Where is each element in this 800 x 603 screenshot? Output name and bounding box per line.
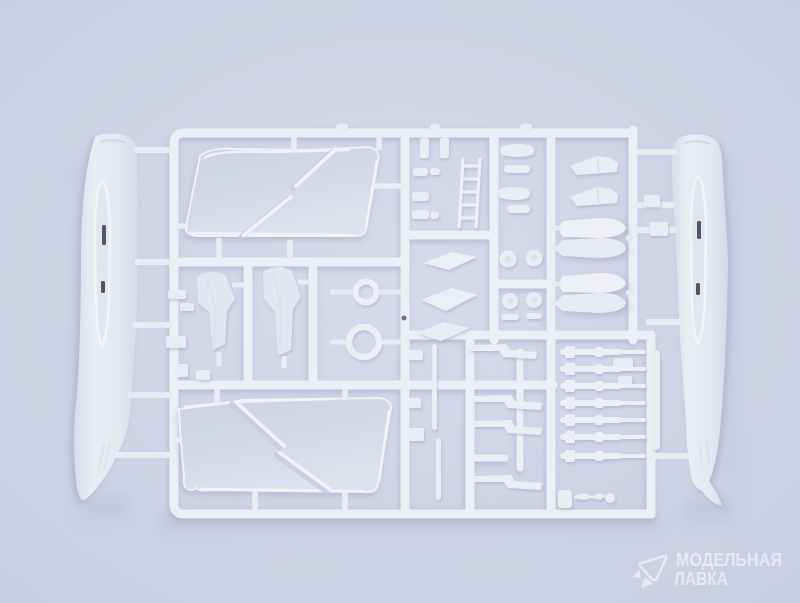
svg-text:МОДЕЛЬНАЯ: МОДЕЛЬНАЯ: [676, 550, 782, 570]
svg-text:ЛАВКА: ЛАВКА: [674, 569, 728, 589]
